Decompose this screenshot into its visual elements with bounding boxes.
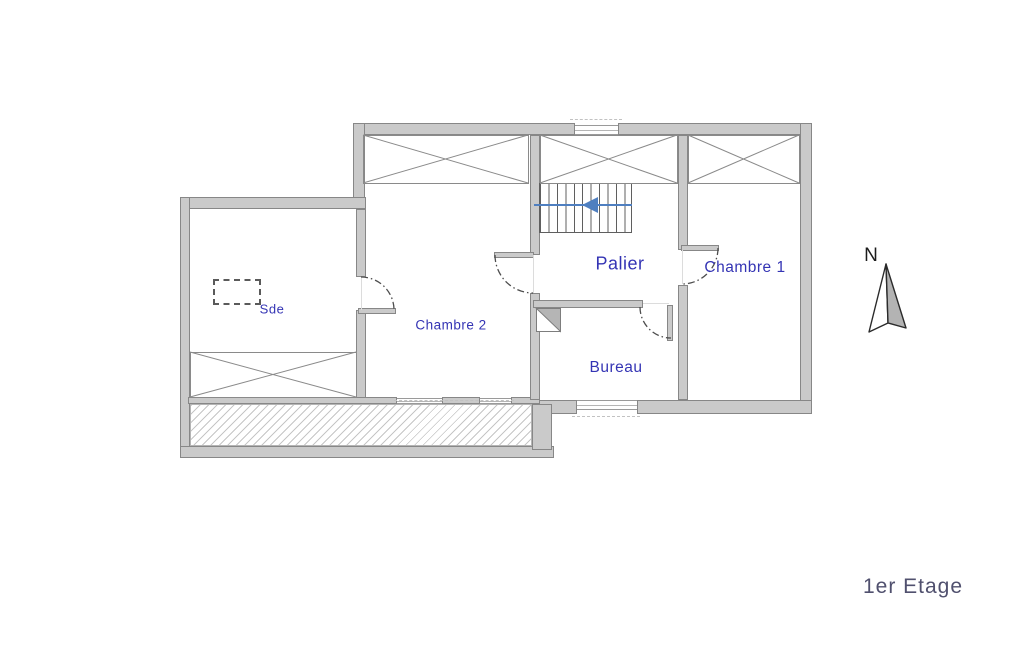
closet-cross (688, 135, 799, 183)
closet-cross (688, 135, 799, 183)
window-top-wall (575, 125, 618, 135)
stair-direction-arrow-icon (582, 197, 598, 213)
closet-box-sde (191, 353, 357, 398)
closet-cross (190, 352, 356, 397)
wall-annex-top (180, 197, 366, 209)
wall-top-right-segment (618, 123, 812, 135)
room-label-palier: Palier (595, 254, 644, 275)
closet-box-chambre2 (364, 136, 529, 184)
room-label-chambre1: Chambre 1 (704, 259, 785, 277)
closet-box-chambre1 (689, 136, 800, 184)
window-bureau-bottom (577, 400, 637, 410)
door-opening-chambre1 (682, 250, 683, 284)
floor-title: 1er Etage (863, 575, 963, 599)
wall-chambre1-divider-bottom (678, 285, 688, 400)
wall-chambre1-divider-top (678, 135, 688, 250)
hatched-balcony-area (190, 404, 532, 446)
wall-top-left-segment (353, 123, 575, 135)
wall-palier-bureau (533, 300, 643, 308)
closet-cross (363, 135, 528, 183)
north-arrow-icon (869, 264, 906, 332)
floor-plan-canvas: Sde Chambre 2 Palier Chambre 1 Bureau N … (0, 0, 1016, 647)
closet-cross (363, 135, 528, 183)
room-label-bureau: Bureau (590, 359, 643, 377)
washbasin-dashed-fixture (213, 279, 261, 305)
door-leaf-bureau (667, 305, 673, 341)
wall-annex-left (180, 197, 190, 458)
closet-cross (540, 135, 677, 183)
wall-interior-bottom-a (188, 397, 397, 404)
door-leaf-chambre2 (494, 252, 534, 258)
wall-sde-divider-bottom (356, 310, 366, 398)
closet-box-palier (541, 136, 678, 184)
plan-linework (0, 0, 1016, 647)
door-leaf-sde (358, 308, 396, 314)
door-opening-bureau (643, 303, 669, 304)
door-leaf-chambre1 (681, 245, 719, 251)
room-label-sde: Sde (260, 302, 285, 317)
closet-cross (540, 135, 677, 183)
wall-sde-divider-top (356, 209, 366, 277)
wall-balcony-right (532, 404, 552, 450)
wall-annex-bottom (180, 446, 554, 458)
door-arc-chambre2 (495, 255, 533, 293)
door-opening-chambre2 (533, 255, 534, 293)
roof-dash-top (570, 119, 622, 120)
room-label-chambre2: Chambre 2 (415, 318, 486, 333)
wall-bureau-left (530, 293, 540, 400)
wall-right-exterior (800, 123, 812, 414)
roof-dash-balcony (394, 400, 514, 401)
duct-symbol (537, 309, 561, 332)
roof-dash-bottom (572, 416, 640, 417)
door-opening-sde (361, 277, 362, 310)
door-arc-sde (361, 277, 394, 310)
north-label: N (864, 245, 878, 267)
closet-cross (190, 352, 356, 397)
wall-bottom-main-right (637, 400, 812, 414)
